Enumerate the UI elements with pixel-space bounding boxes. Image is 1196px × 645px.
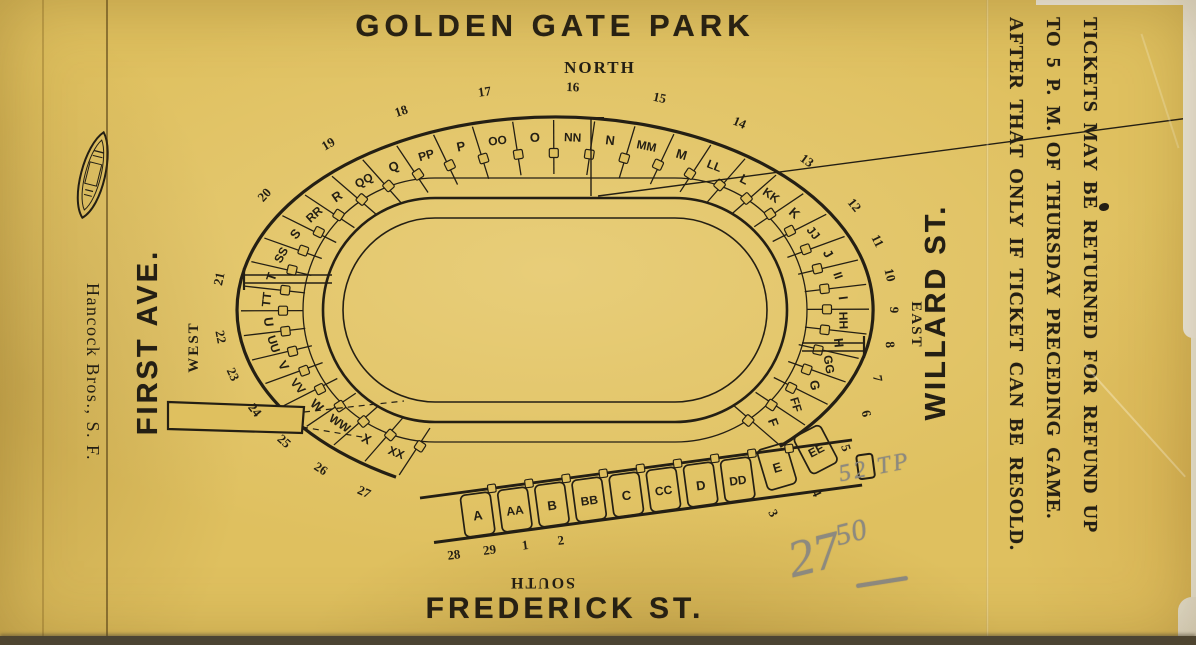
gate-number: 28	[446, 546, 461, 563]
section-label: GG	[821, 354, 838, 375]
compass-south-label: SOUTH	[482, 572, 602, 592]
section-label: G	[806, 379, 823, 392]
aisle-marker	[619, 153, 630, 164]
section-label: SS	[271, 245, 291, 266]
section-divider	[798, 260, 858, 274]
section-label: A	[472, 507, 484, 523]
refund-notice: TICKETS MAY BE RETURNED FOR REFUND UP TO…	[997, 17, 1109, 627]
section-label: KK	[760, 185, 782, 206]
aisle-marker	[280, 326, 290, 336]
refund-notice-line: TICKETS MAY BE RETURNED FOR REFUND UP	[1072, 17, 1109, 533]
aisle-marker	[710, 454, 719, 463]
section-label: R	[329, 187, 346, 205]
pencil-price-cents: 50	[832, 512, 871, 552]
gate-number: 12	[845, 195, 865, 215]
section-label: JJ	[804, 223, 823, 242]
section-box: A	[460, 492, 495, 538]
section-label: X	[359, 430, 374, 447]
gate-number: 27	[355, 482, 373, 501]
compass-north-label: NORTH	[520, 57, 680, 79]
gate-number: 19	[319, 134, 338, 154]
aisle-marker	[740, 192, 753, 205]
refund-notice-line: AFTER THAT ONLY IF TICKET CAN BE RESOLD.	[998, 17, 1035, 551]
section-divider	[805, 284, 866, 291]
gate-number: 16	[566, 79, 580, 94]
section-box: D	[683, 462, 718, 508]
section-label: TT	[259, 291, 274, 308]
printer-name: Hancock Bros., S. F.	[81, 231, 105, 513]
section-label: LL	[705, 157, 724, 175]
section-label: I	[836, 295, 851, 300]
section-divider	[787, 237, 844, 258]
street-label-willard-st: WILLARD ST.	[917, 170, 955, 454]
section-label: UU	[264, 334, 283, 355]
compass-west-label: WEST	[184, 305, 204, 389]
gate-number: 1	[521, 537, 529, 553]
section-label: C	[621, 487, 633, 503]
section-label: PP	[417, 146, 436, 164]
section-label: O	[529, 130, 540, 145]
section-label: D	[695, 477, 706, 493]
fold-line-left-edge	[42, 0, 44, 645]
gate-number: 18	[393, 101, 411, 120]
section-label: E	[771, 459, 784, 476]
section-label: B	[546, 497, 557, 513]
section-label: VV	[287, 376, 308, 397]
scanned-ticket: FFFGGGHHHIIIJJJKKKLLLMMMNNNOOOPPPQQQRRRS…	[0, 0, 1196, 645]
gate-number: 6	[859, 409, 875, 419]
aisle-marker	[819, 284, 829, 294]
gate-number: 29	[482, 541, 497, 558]
gate-number: 8	[883, 341, 899, 349]
section-label: M	[674, 146, 689, 163]
section-label: W	[307, 396, 327, 416]
section-label: WW	[326, 411, 353, 436]
page-title: GOLDEN GATE PARK	[320, 8, 790, 44]
scan-bed-strip	[0, 636, 1196, 645]
aisle-marker	[813, 345, 824, 356]
section-label: MM	[635, 137, 657, 155]
aisle-marker	[801, 364, 812, 375]
scan-edge-right-wide	[1183, 0, 1196, 338]
gate-number: 15	[652, 89, 668, 106]
section-label: II	[830, 270, 845, 281]
aisle-marker	[812, 263, 823, 274]
gate-number: 7	[870, 374, 886, 383]
scan-corner-notch	[1178, 597, 1196, 639]
section-label: OO	[487, 133, 507, 149]
aisle-marker	[298, 365, 310, 377]
section-box: DD	[720, 457, 755, 503]
section-label: K	[786, 204, 803, 222]
field-oval-inner	[343, 218, 767, 402]
gate-number: 5	[838, 442, 854, 453]
section-label: NN	[564, 130, 582, 145]
gate-number: 23	[224, 365, 243, 384]
aisle-marker	[820, 325, 830, 335]
section-label: T	[263, 271, 280, 283]
section-label: P	[455, 138, 467, 155]
section-box: B	[534, 482, 569, 528]
aisle-marker	[280, 285, 290, 295]
aisle-marker	[673, 459, 682, 468]
gate-number: 17	[477, 83, 492, 100]
aisle-marker	[636, 464, 645, 473]
section-label: J	[820, 247, 837, 261]
aisle-marker	[382, 180, 395, 193]
gate-number: 21	[210, 271, 227, 287]
aisle-marker	[822, 305, 831, 314]
section-label: QQ	[352, 170, 375, 191]
section-divider	[619, 126, 635, 178]
section-box: CC	[646, 467, 681, 513]
section-label: AA	[505, 503, 524, 519]
aisle-marker	[599, 469, 608, 478]
section-divider	[805, 327, 867, 334]
aisle-marker	[384, 429, 397, 442]
section-label: F	[765, 416, 782, 429]
section-label: N	[605, 132, 616, 148]
field-oval-outer	[323, 198, 787, 422]
aisle-marker	[357, 415, 370, 428]
gate-number: 2	[557, 532, 565, 548]
gate-number: 26	[312, 459, 331, 479]
section-label: CC	[654, 483, 673, 499]
section-box: BB	[572, 477, 607, 523]
crease-line-right	[986, 0, 989, 645]
section-divider	[513, 122, 521, 176]
gate-number: 20	[254, 185, 274, 205]
section-label: FF	[787, 396, 805, 414]
aisle-marker	[549, 148, 558, 157]
gate-number: 22	[212, 329, 229, 345]
gate-number: 9	[887, 307, 902, 314]
street-label-first-ave: FIRST AVE.	[129, 192, 167, 492]
section-label: H	[831, 337, 847, 348]
section-divider	[434, 135, 458, 185]
section-label: HH	[836, 312, 851, 330]
gate-number: 10	[881, 267, 899, 283]
aisle-marker	[584, 149, 594, 159]
gate-number: 14	[731, 113, 749, 132]
gate-number: 3	[765, 507, 782, 520]
section-box: C	[609, 472, 644, 518]
stub-perforation-line	[106, 0, 108, 645]
aisle-marker	[800, 244, 812, 256]
gate-number: 25	[274, 431, 294, 451]
section-label: DD	[728, 473, 747, 489]
aisle-marker	[513, 149, 523, 159]
section-label: V	[275, 358, 292, 373]
players-tunnel	[168, 402, 304, 433]
aisle-marker	[298, 245, 309, 256]
aisle-marker	[478, 153, 489, 164]
section-box: AA	[497, 487, 532, 533]
section-label: Q	[386, 158, 401, 176]
gate-number: 11	[868, 232, 887, 250]
aisle-marker	[287, 346, 298, 357]
aisle-marker	[278, 306, 287, 315]
aisle-marker	[287, 265, 298, 276]
section-label: L	[737, 171, 751, 188]
section-divider	[244, 286, 306, 293]
section-label: S	[287, 226, 304, 242]
section-label: U	[261, 316, 277, 327]
refund-notice-line: TO 5 P. M. OF THURSDAY PRECEDING GAME.	[1035, 17, 1072, 519]
aisle-marker	[562, 474, 571, 483]
aisle-marker	[747, 449, 756, 458]
aisle-marker	[525, 479, 534, 488]
aisle-marker	[487, 484, 496, 493]
scan-edge-top	[1036, 0, 1196, 5]
section-label: BB	[580, 493, 599, 509]
aisle-marker	[785, 444, 794, 453]
street-label-frederick-st: FREDERICK ST.	[370, 592, 760, 626]
section-label: XX	[386, 443, 406, 462]
